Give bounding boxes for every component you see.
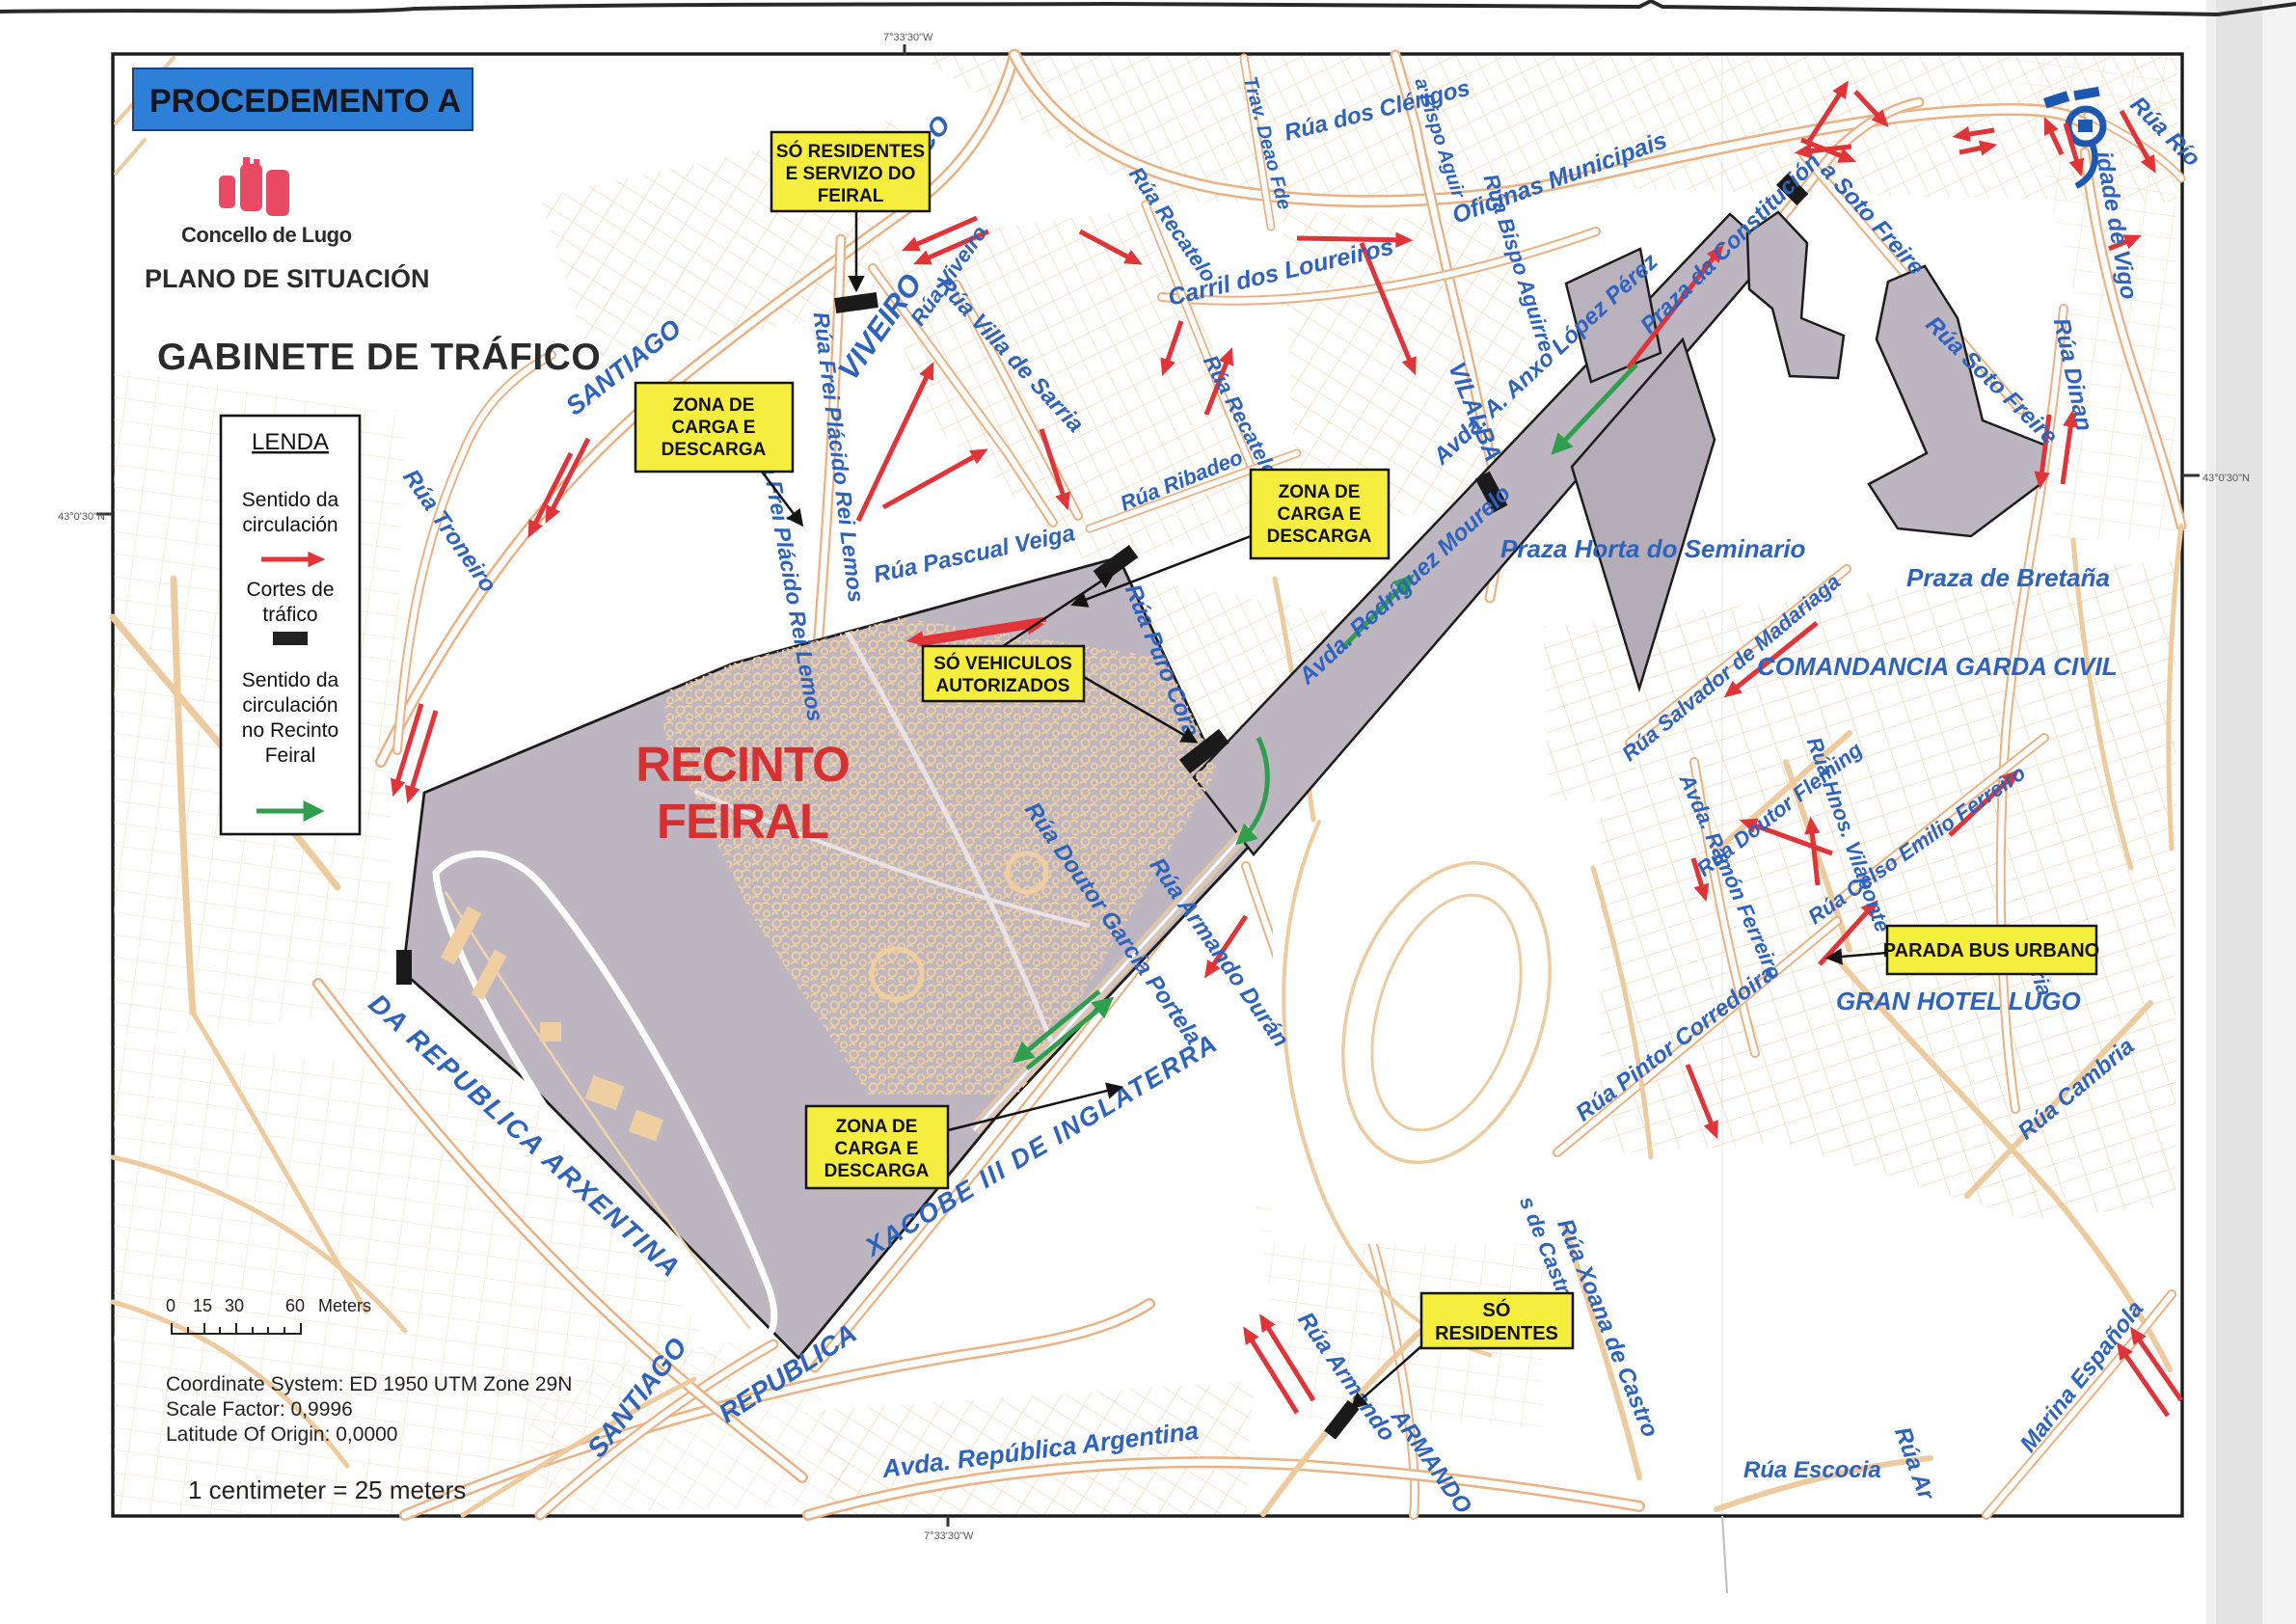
svg-text:7°33'30"W: 7°33'30"W bbox=[924, 1530, 974, 1542]
svg-text:Concello de Lugo: Concello de Lugo bbox=[181, 223, 352, 247]
svg-text:Cortes de: Cortes de bbox=[246, 579, 334, 601]
svg-text:0: 0 bbox=[166, 1296, 176, 1315]
svg-text:FEIRAL: FEIRAL bbox=[818, 186, 884, 206]
svg-text:RESIDENTES: RESIDENTES bbox=[1435, 1323, 1558, 1344]
svg-text:Praza de Bretaña: Praza de Bretaña bbox=[1906, 563, 2110, 592]
svg-text:SÓ VEHICULOS: SÓ VEHICULOS bbox=[933, 653, 1072, 674]
svg-text:ZONA DE: ZONA DE bbox=[1279, 482, 1361, 502]
svg-text:43°0'30"N: 43°0'30"N bbox=[58, 511, 105, 523]
svg-text:Meters: Meters bbox=[318, 1296, 371, 1315]
svg-text:Praza Horta do Seminario: Praza Horta do Seminario bbox=[1500, 534, 1806, 563]
svg-text:CARGA E: CARGA E bbox=[835, 1139, 919, 1159]
svg-text:15: 15 bbox=[193, 1296, 212, 1315]
svg-text:GABINETE DE TRÁFICO: GABINETE DE TRÁFICO bbox=[157, 336, 601, 378]
svg-text:DESCARGA: DESCARGA bbox=[662, 440, 767, 460]
svg-text:circulación: circulación bbox=[242, 694, 338, 717]
svg-text:1 centimeter = 25 meters: 1 centimeter = 25 meters bbox=[188, 1475, 466, 1504]
svg-text:PROCEDEMENTO A: PROCEDEMENTO A bbox=[149, 83, 461, 120]
svg-text:SÓ: SÓ bbox=[1483, 1298, 1511, 1321]
svg-text:tráfico: tráfico bbox=[262, 604, 317, 626]
svg-text:PLANO DE SITUACIÓN: PLANO DE SITUACIÓN bbox=[145, 263, 430, 293]
svg-text:E SERVIZO DO: E SERVIZO DO bbox=[786, 164, 916, 184]
svg-text:RECINTO: RECINTO bbox=[635, 737, 850, 792]
svg-text:CARGA E: CARGA E bbox=[1278, 504, 1362, 525]
svg-text:ZONA DE: ZONA DE bbox=[673, 395, 755, 416]
svg-text:AUTORIZADOS: AUTORIZADOS bbox=[936, 676, 1070, 696]
svg-text:DESCARGA: DESCARGA bbox=[1267, 527, 1372, 547]
svg-text:CARGA E: CARGA E bbox=[672, 418, 756, 438]
svg-text:Sentido da: Sentido da bbox=[242, 669, 339, 691]
svg-text:PARADA BUS URBANO: PARADA BUS URBANO bbox=[1883, 940, 2099, 961]
svg-text:43°0'30"N: 43°0'30"N bbox=[2202, 473, 2250, 484]
svg-text:Scale Factor: 0,9996: Scale Factor: 0,9996 bbox=[166, 1398, 353, 1421]
svg-text:SÓ RESIDENTES: SÓ RESIDENTES bbox=[776, 141, 925, 162]
svg-text:60: 60 bbox=[285, 1296, 305, 1315]
svg-text:Rúa Escocia: Rúa Escocia bbox=[1743, 1457, 1881, 1483]
svg-text:Sentido da: Sentido da bbox=[242, 489, 339, 511]
svg-text:7°33'30"W: 7°33'30"W bbox=[883, 32, 933, 43]
svg-text:30: 30 bbox=[225, 1296, 244, 1315]
svg-text:FEIRAL: FEIRAL bbox=[657, 794, 828, 849]
svg-text:LENDA: LENDA bbox=[252, 429, 329, 455]
svg-text:ZONA DE: ZONA DE bbox=[836, 1117, 918, 1137]
svg-text:Latitude Of Origin: 0,0000: Latitude Of Origin: 0,0000 bbox=[166, 1423, 398, 1446]
svg-text:circulación: circulación bbox=[242, 514, 338, 536]
svg-text:COMANDANCIA GARDA CIVIL: COMANDANCIA GARDA CIVIL bbox=[1757, 652, 2118, 681]
svg-text:no Recinto: no Recinto bbox=[242, 719, 338, 742]
svg-text:Coordinate System: ED 1950 UTM: Coordinate System: ED 1950 UTM Zone 29N bbox=[166, 1373, 572, 1395]
svg-text:Feiral: Feiral bbox=[265, 744, 316, 767]
svg-text:DESCARGA: DESCARGA bbox=[824, 1161, 930, 1181]
